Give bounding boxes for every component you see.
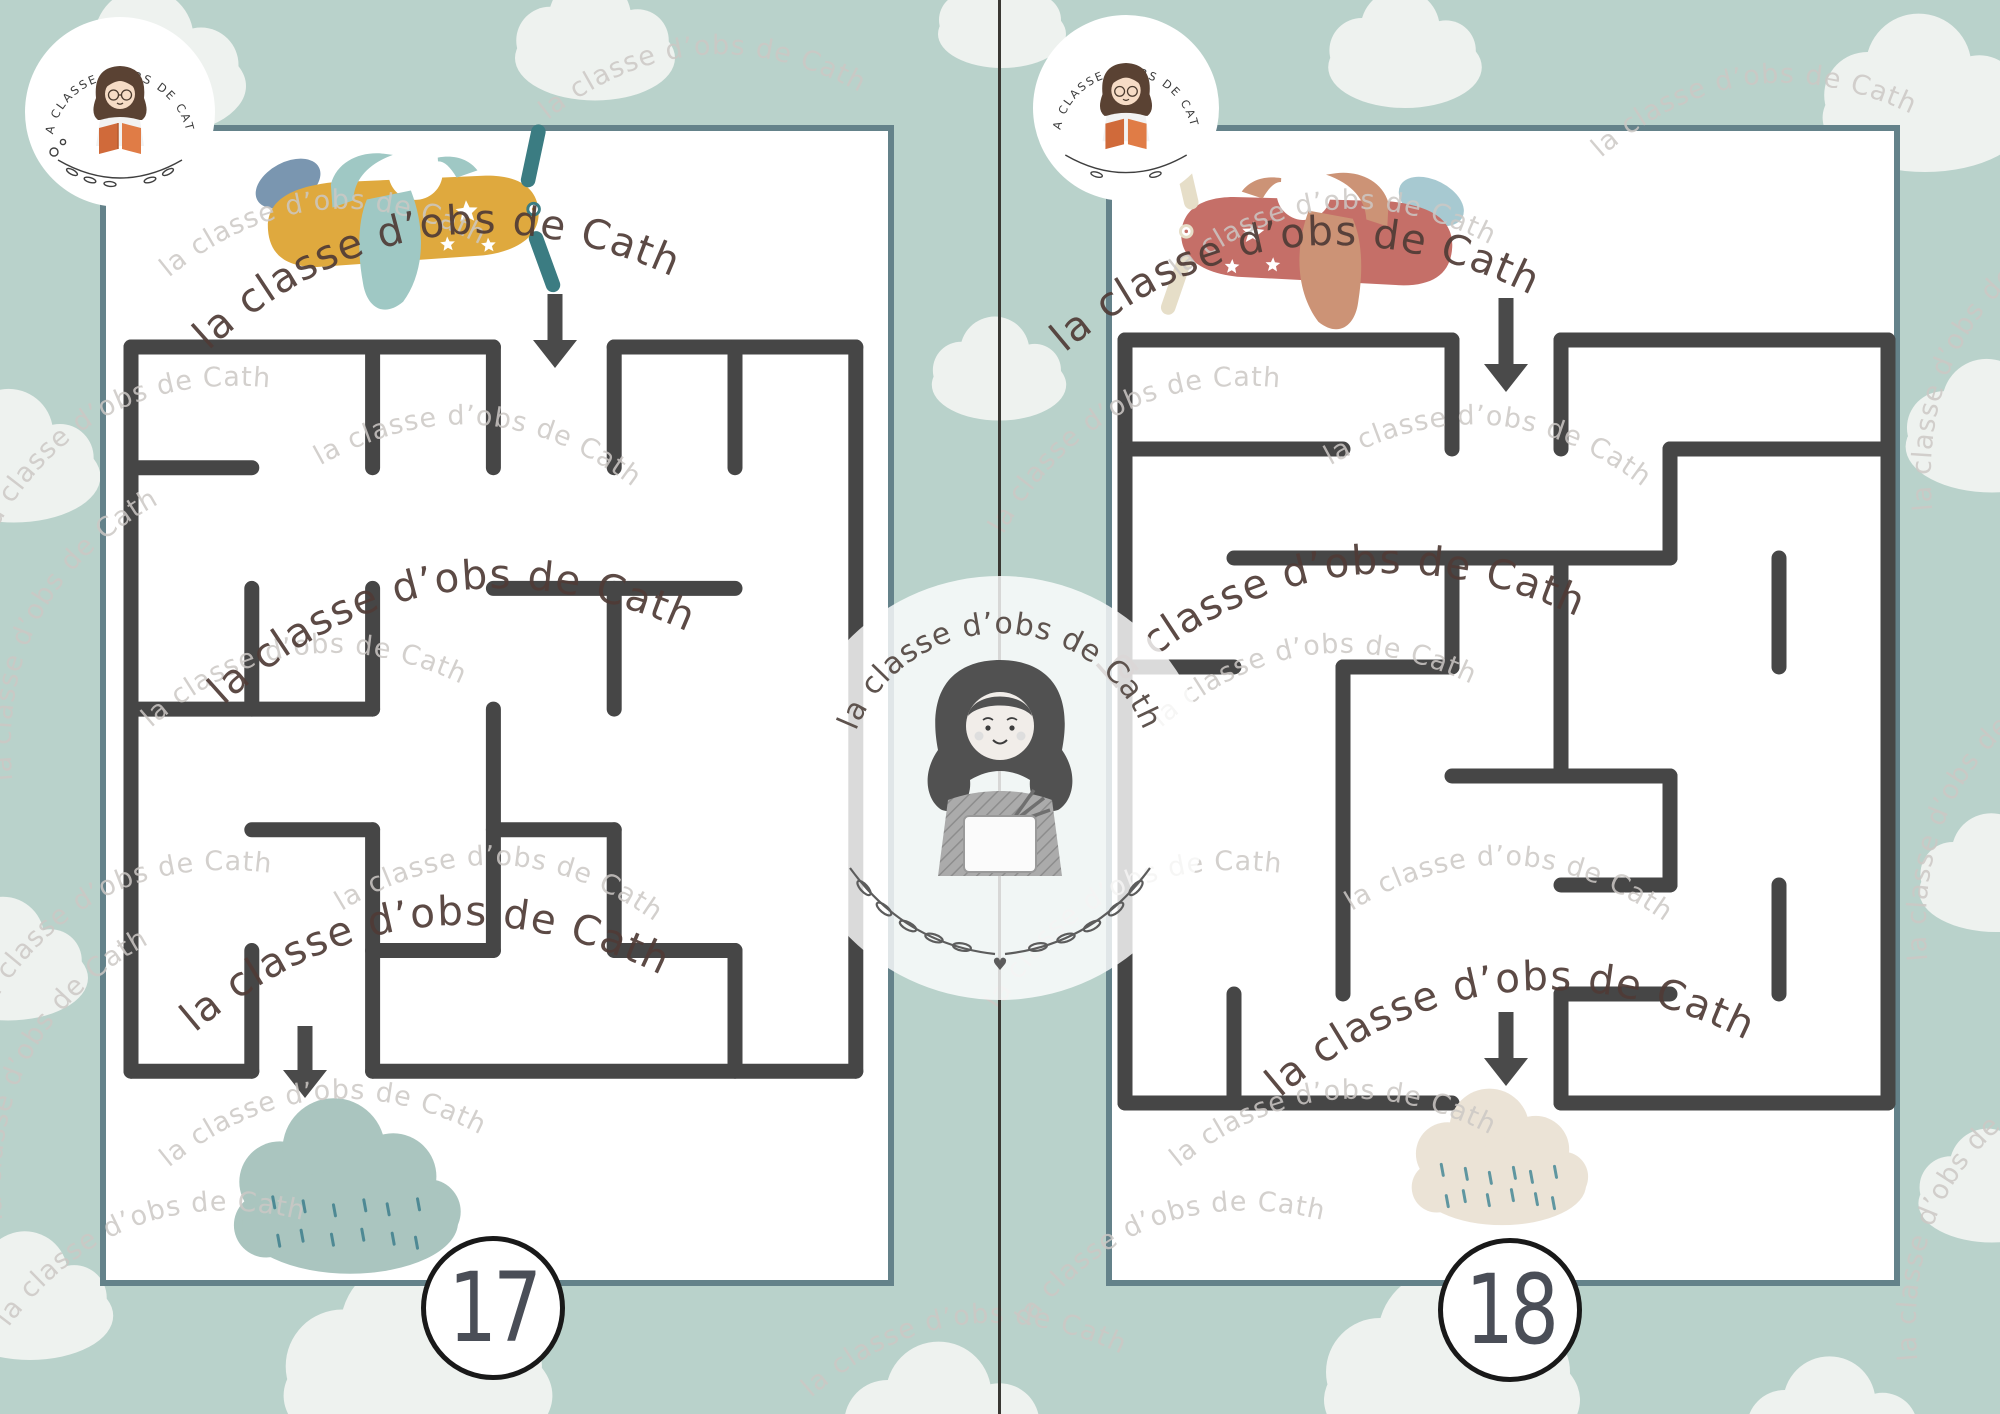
badge-girl-illustration	[93, 66, 146, 154]
page-number-badge-17: 17	[421, 1236, 565, 1380]
watermark-arc-text: la classe d’obs de Cath	[1317, 389, 1662, 494]
brand-badge-left: LA CLASSE D’OBS DE CATH	[25, 17, 215, 207]
page-number: 17	[448, 1260, 538, 1356]
watermark-arc-text: la classe d’obs de Cath	[0, 456, 171, 794]
watermark-arc-text: la classe d’obs de Cath	[1158, 1058, 1504, 1175]
watermark-arc-text: la classe d’obs de Cath	[185, 515, 710, 717]
page-number: 18	[1465, 1262, 1555, 1358]
watermark-arc-text: la classe d’obs de Cath	[1578, 38, 1926, 166]
watermark-arc-text: la classe d’obs de Cath	[170, 160, 695, 362]
watermark-arc-text: la classe d’obs de Cath	[788, 1278, 1136, 1406]
watermark-arc-text: la classe d’obs de Cath	[1338, 835, 1680, 928]
watermark-arc-text: la classe d’obs de Cath	[1854, 636, 2000, 974]
watermark-arc-text: la classe d’obs de Cath	[1844, 1036, 2000, 1374]
watermark-arc-text: la classe d’obs de Cath	[1859, 186, 2000, 524]
svg-text:♥: ♥	[992, 955, 1007, 975]
brand-logo-watermark: la classe d’obs de Cath	[788, 576, 1212, 1000]
page-number-badge-18: 18	[1438, 1238, 1582, 1382]
worksheet-spread: la classe d’obs de Cathla classe d’obs d…	[0, 0, 2000, 1414]
watermark-arc-text: la classe d’obs de Cath	[148, 1058, 494, 1175]
watermark-arc-text: la classe d’obs de Cath	[0, 1145, 318, 1338]
logo-woman-illustration	[928, 660, 1073, 876]
brand-badge-right: LA CLASSE D’OBS DE CATH	[1033, 15, 1219, 201]
watermark-arc-text: la classe d’obs de Cath	[528, 16, 874, 127]
badge-girl-illustration	[1100, 63, 1152, 149]
watermark-arc-text: la classe d’obs de Cath	[956, 315, 1294, 547]
watermark-arc-text: la classe d’obs de Cath	[307, 389, 652, 494]
